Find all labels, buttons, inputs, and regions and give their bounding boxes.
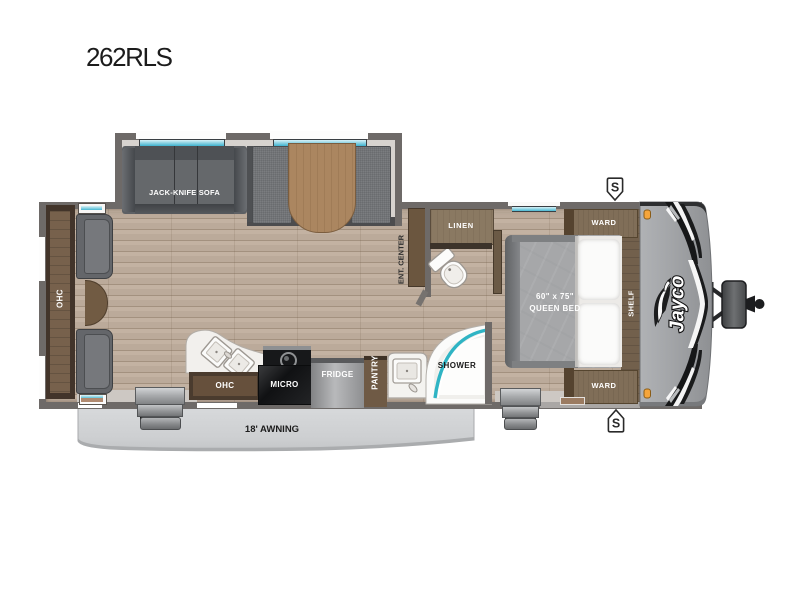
svg-text:Jayco: Jayco — [666, 276, 688, 333]
svg-text:S: S — [611, 181, 619, 195]
svg-text:18' AWNING: 18' AWNING — [245, 424, 299, 435]
svg-text:S: S — [612, 417, 620, 431]
